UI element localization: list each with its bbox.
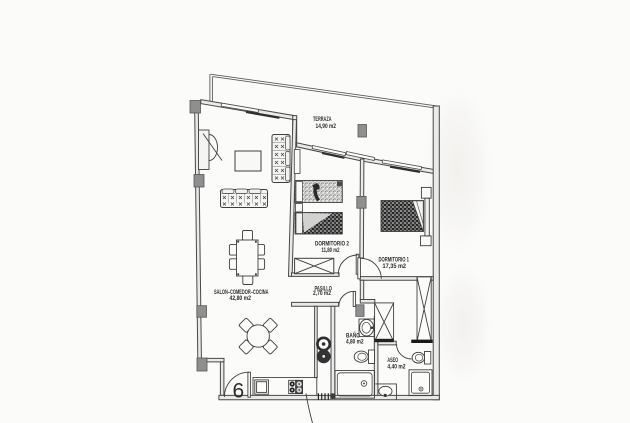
svg-text:4,40 m2: 4,40 m2 bbox=[387, 364, 406, 370]
svg-text:42,80 m2: 42,80 m2 bbox=[230, 296, 252, 302]
svg-text:2,70 m2: 2,70 m2 bbox=[313, 291, 332, 297]
svg-text:6: 6 bbox=[233, 380, 245, 403]
svg-text:17,35 m2: 17,35 m2 bbox=[383, 264, 407, 270]
svg-text:11,80 m2: 11,80 m2 bbox=[322, 248, 340, 254]
svg-text:ASEO: ASEO bbox=[387, 358, 398, 364]
svg-text:DORMITORIO 2: DORMITORIO 2 bbox=[315, 241, 350, 247]
svg-text:TERRAZA: TERRAZA bbox=[313, 117, 332, 123]
svg-text:BAÑO: BAÑO bbox=[346, 332, 360, 339]
svg-text:DORMITORIO 1: DORMITORIO 1 bbox=[379, 258, 410, 264]
svg-text:14,90 m2: 14,90 m2 bbox=[316, 124, 337, 130]
svg-text:SALON–COMEDOR–COCINA: SALON–COMEDOR–COCINA bbox=[214, 290, 269, 296]
svg-text:4,80 m2: 4,80 m2 bbox=[346, 340, 364, 346]
